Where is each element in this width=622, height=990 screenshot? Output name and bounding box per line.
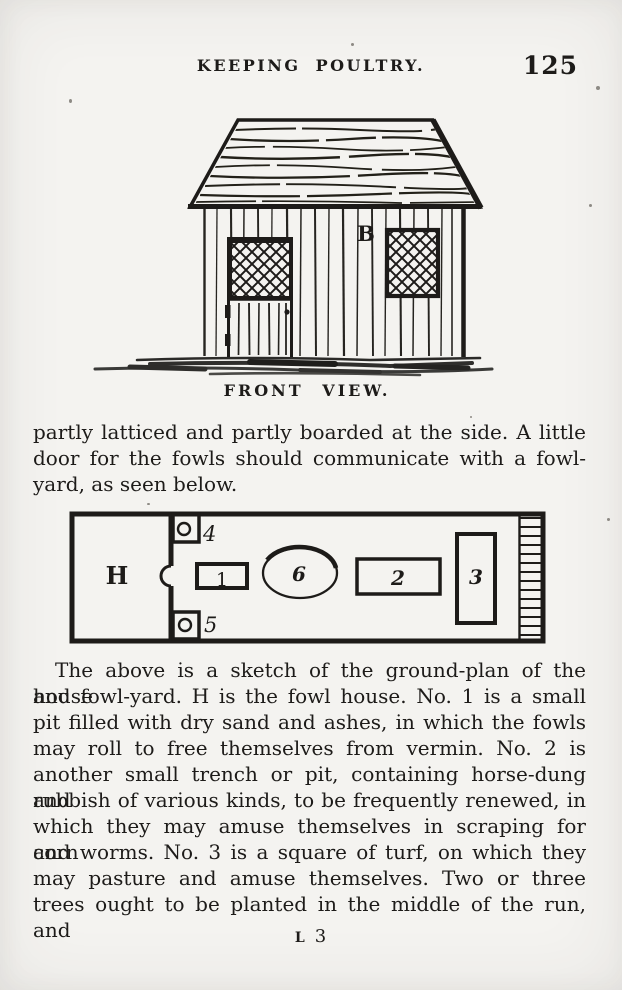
text-line: which they may amuse themselves in scrap… (33, 813, 586, 839)
scan-speck (607, 518, 610, 521)
text-line: and worms. No. 3 is a square of turf, on… (33, 839, 586, 865)
signature-letter: L (295, 930, 306, 946)
scan-speck (69, 99, 72, 103)
front-view-illustration: B (80, 98, 520, 410)
plan-label-5: 5 (204, 613, 217, 637)
door (225, 237, 293, 357)
plan-label-h: H (106, 561, 129, 590)
ground-plan-illustration: H 1 6 2 3 4 5 (55, 498, 570, 658)
page-number: 125 (523, 51, 578, 80)
body-paragraph: The above is a sketch of the ground-plan… (33, 657, 586, 917)
plan-label-6: 6 (292, 562, 306, 586)
scan-speck (596, 86, 600, 90)
plan-label-3: 3 (469, 565, 483, 589)
scan-speck (351, 43, 354, 46)
text-line: rubbish of various kinds, to be frequent… (33, 787, 586, 813)
printers-signature: L3 (0, 926, 622, 947)
scan-speck (470, 416, 472, 418)
door-hinge (225, 305, 231, 318)
plan-pen-bottom (173, 612, 199, 639)
lattice-window (385, 228, 440, 298)
book-page: KEEPING POULTRY. 125 (0, 0, 622, 990)
text-line: may roll to free themselves from vermin.… (33, 735, 586, 761)
wall-label-b: B (357, 221, 375, 246)
text-line: door for the fowls should communicate wi… (33, 445, 586, 471)
text-line: may pasture and amuse themselves. Two or… (33, 865, 586, 891)
door-hinge (225, 334, 231, 346)
plan-dividing-wall (161, 514, 171, 641)
text-line: trees ought to be planted in the middle … (33, 891, 586, 917)
text-line: another small trench or pit, containing … (33, 761, 586, 787)
plan-label-1: 1 (216, 569, 228, 591)
scan-speck (589, 204, 592, 207)
figure-caption: FRONT VIEW. (0, 381, 614, 400)
text-line: and fowl-yard. H is the fowl house. No. … (33, 683, 586, 709)
intro-paragraph: partly latticed and partly boarded at th… (33, 419, 586, 497)
door-knob (284, 309, 289, 314)
plan-hatched-strip (520, 514, 542, 641)
text-line: partly latticed and partly boarded at th… (33, 419, 586, 445)
ground-shading (95, 358, 492, 375)
plan-pen-top (173, 514, 199, 542)
plan-label-2: 2 (390, 566, 405, 590)
plan-label-4: 4 (202, 522, 216, 546)
roof (188, 120, 481, 208)
text-line: yard, as seen below. (33, 471, 586, 497)
text-line: The above is a sketch of the ground-plan… (33, 657, 586, 683)
signature-number: 3 (315, 926, 327, 947)
text-line: pit filled with dry sand and ashes, in w… (33, 709, 586, 735)
